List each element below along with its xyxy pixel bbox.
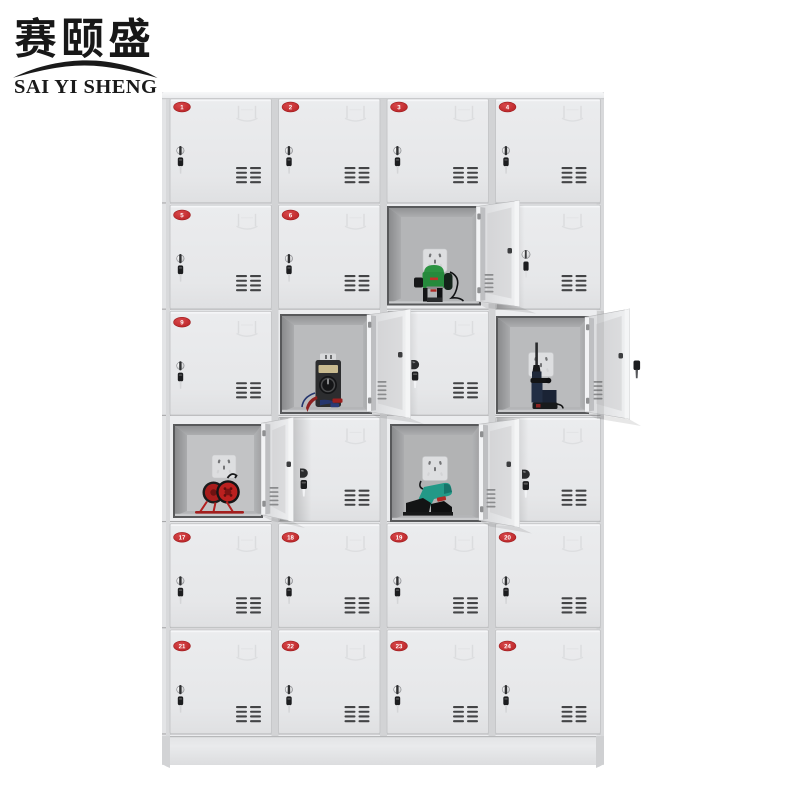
svg-text:SAI YI SHENG: SAI YI SHENG <box>14 76 157 98</box>
svg-text:22: 22 <box>287 643 294 650</box>
svg-text:20: 20 <box>504 535 511 542</box>
svg-text:17: 17 <box>179 535 186 542</box>
svg-text:18: 18 <box>287 535 294 542</box>
svg-text:21: 21 <box>179 643 186 650</box>
svg-text:24: 24 <box>504 643 511 650</box>
svg-text:23: 23 <box>396 643 403 650</box>
svg-text:19: 19 <box>396 535 403 542</box>
